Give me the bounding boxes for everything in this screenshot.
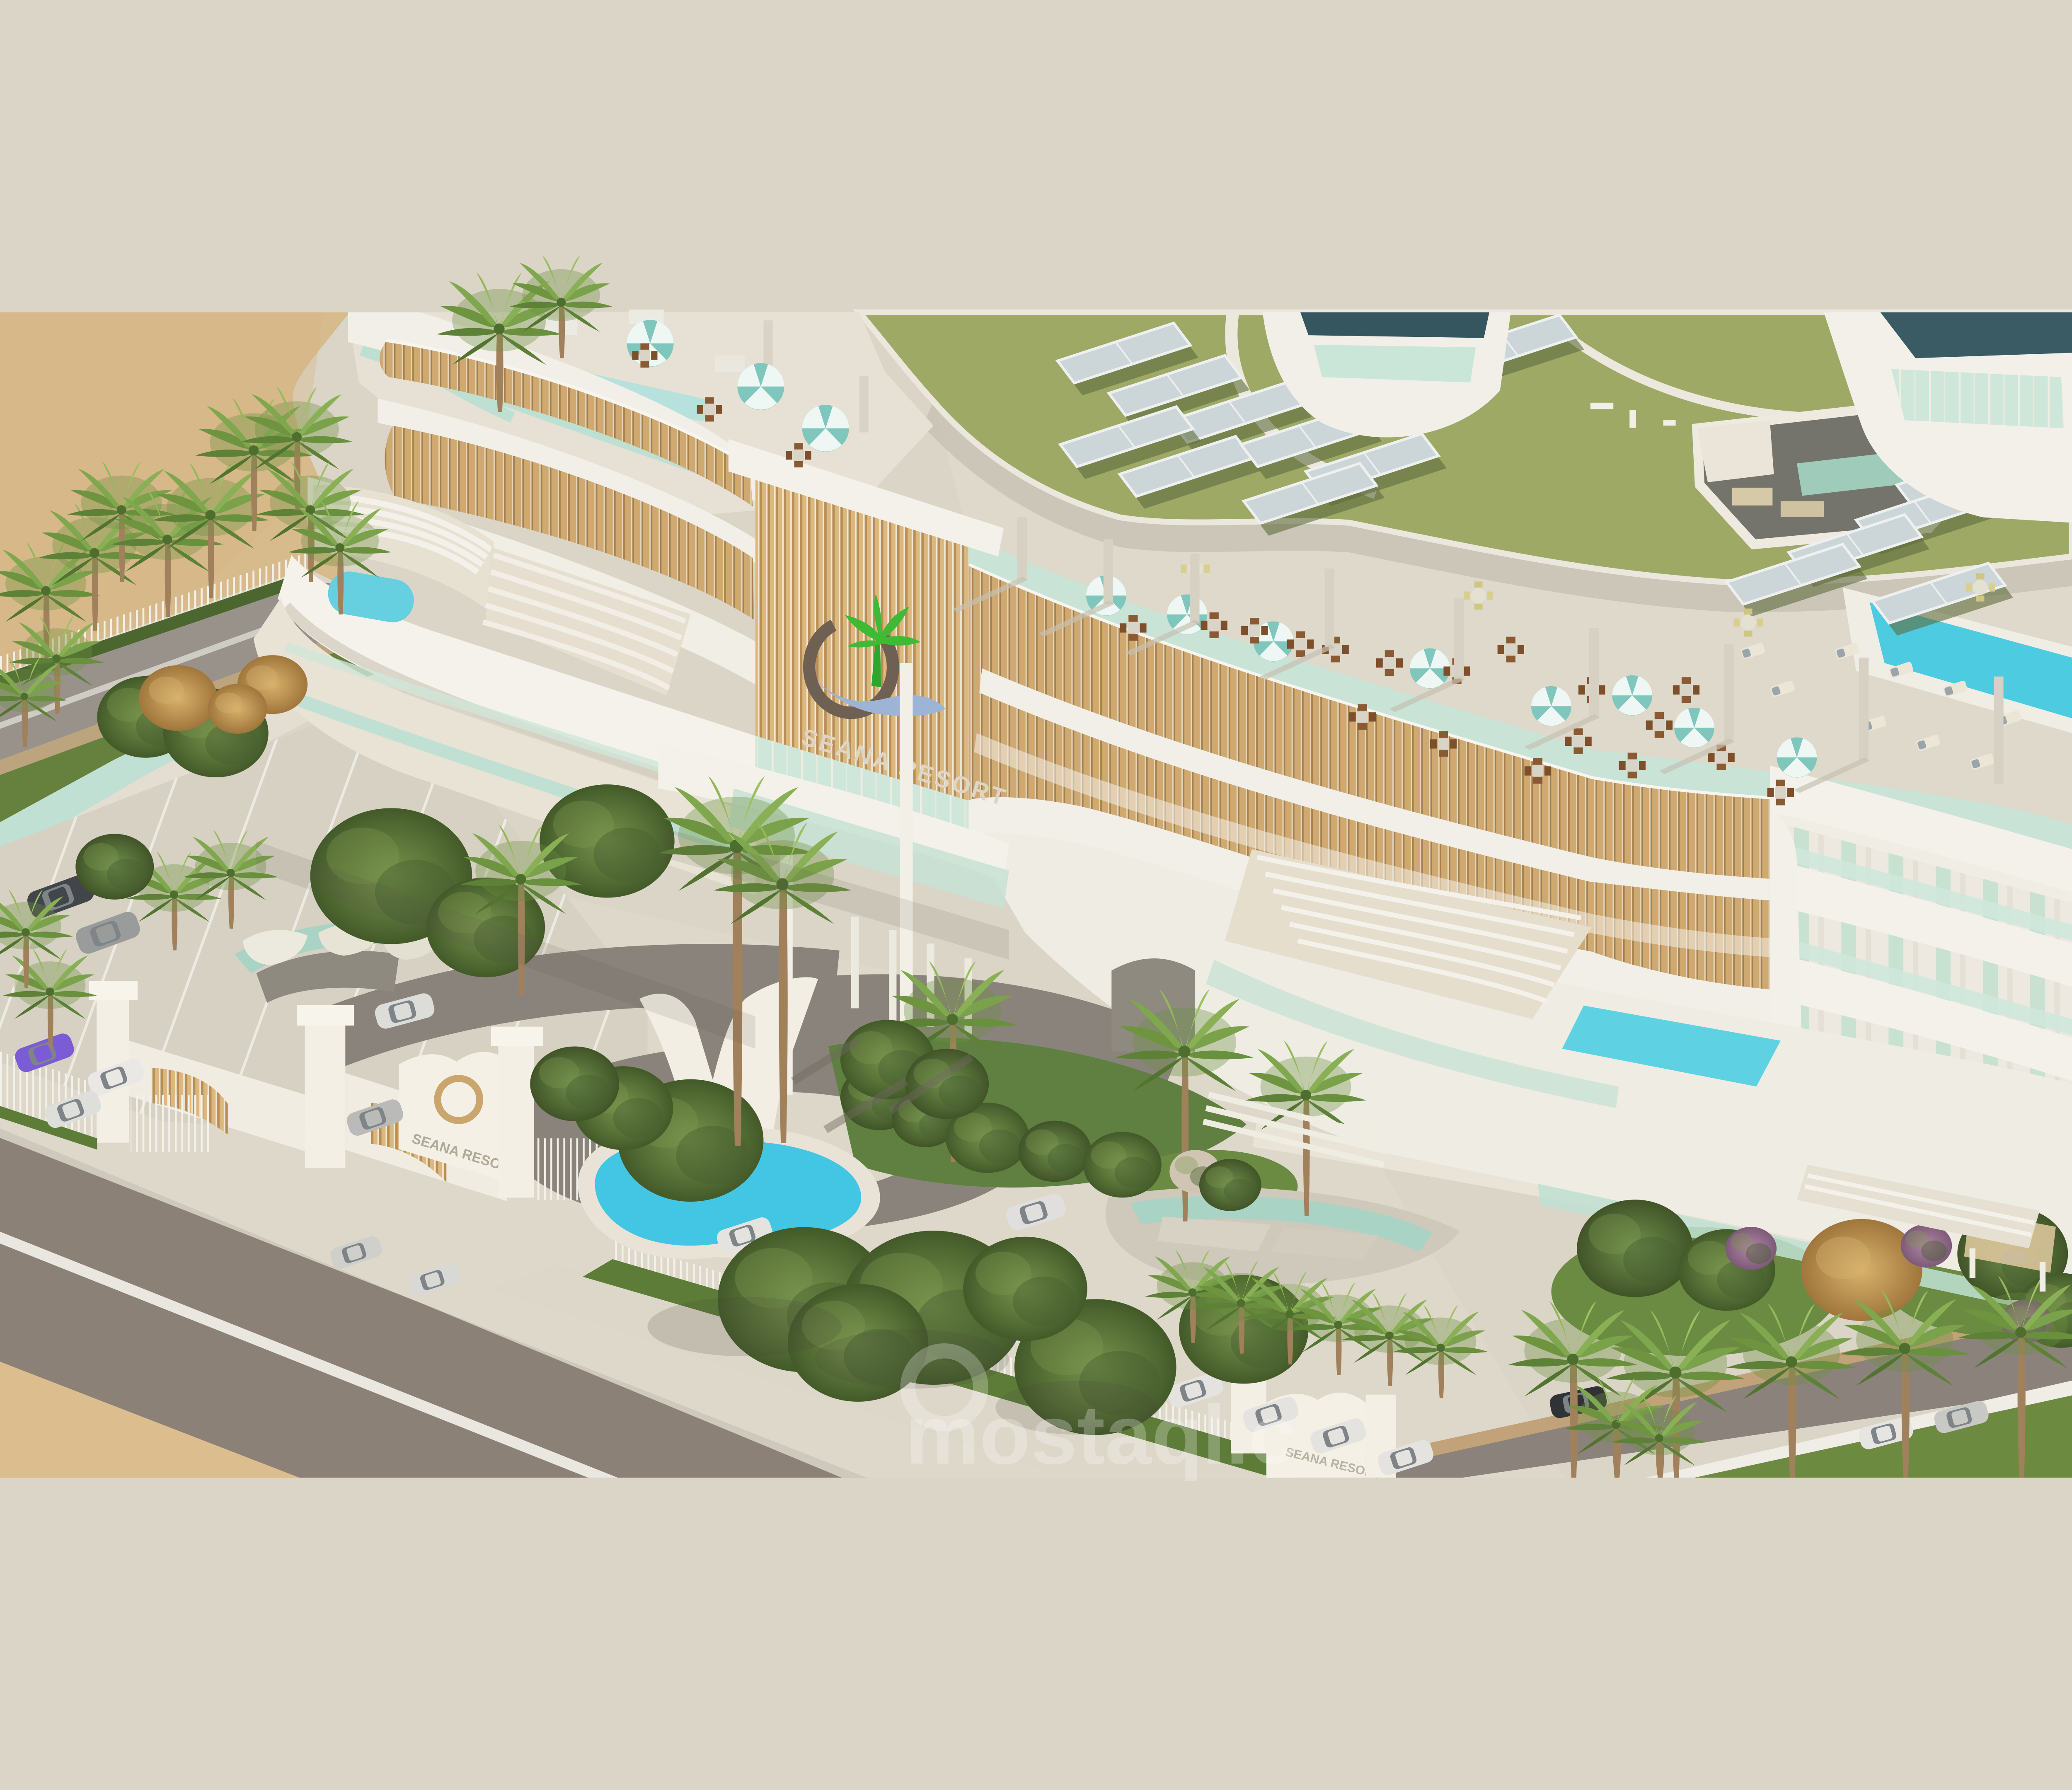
svg-text:mostaql.c: mostaql.c [905,1388,1295,1481]
